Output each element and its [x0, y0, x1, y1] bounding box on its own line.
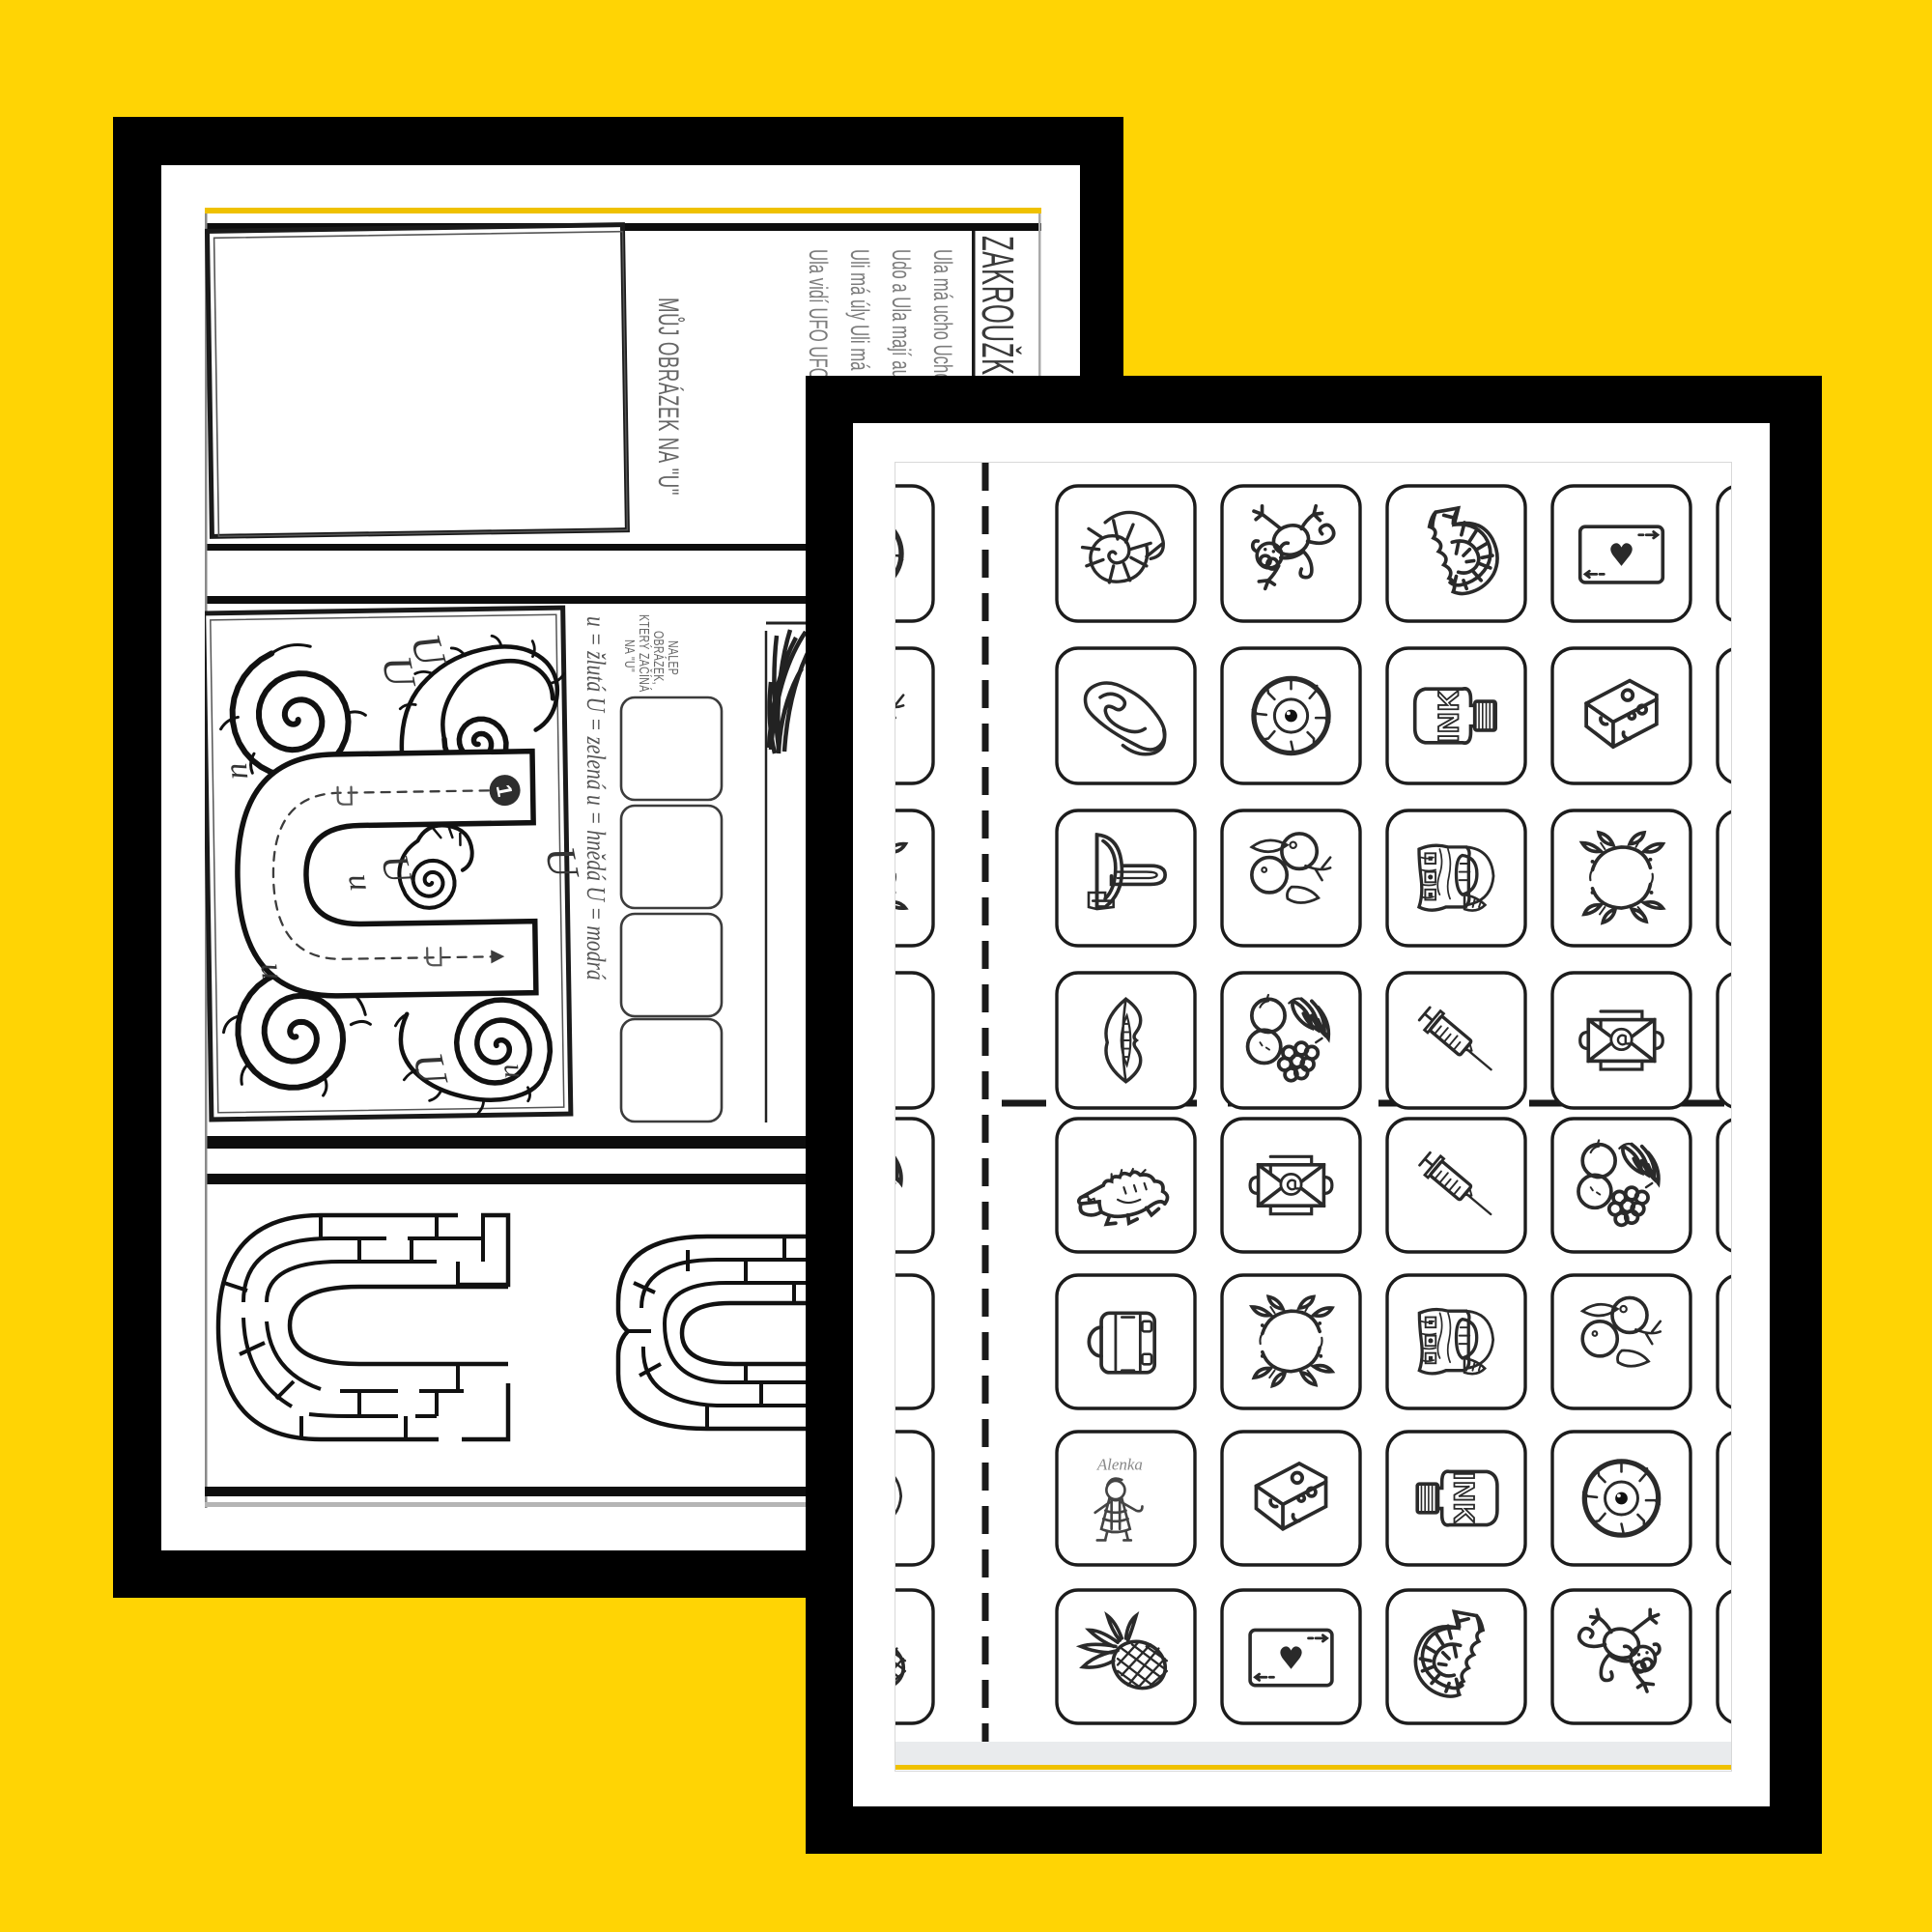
svg-text:NA "U": NA "U"	[622, 639, 639, 672]
svg-text:MŮJ OBRÁZEK NA "U": MŮJ OBRÁZEK NA "U"	[652, 298, 688, 496]
svg-text:Udo a Ula mají auto: Udo a Ula mají auto	[887, 249, 916, 392]
svg-text:u = žlutá U = zelená u = hně: u = žlutá U = zelená u = hnědá U = modrá	[581, 616, 610, 980]
